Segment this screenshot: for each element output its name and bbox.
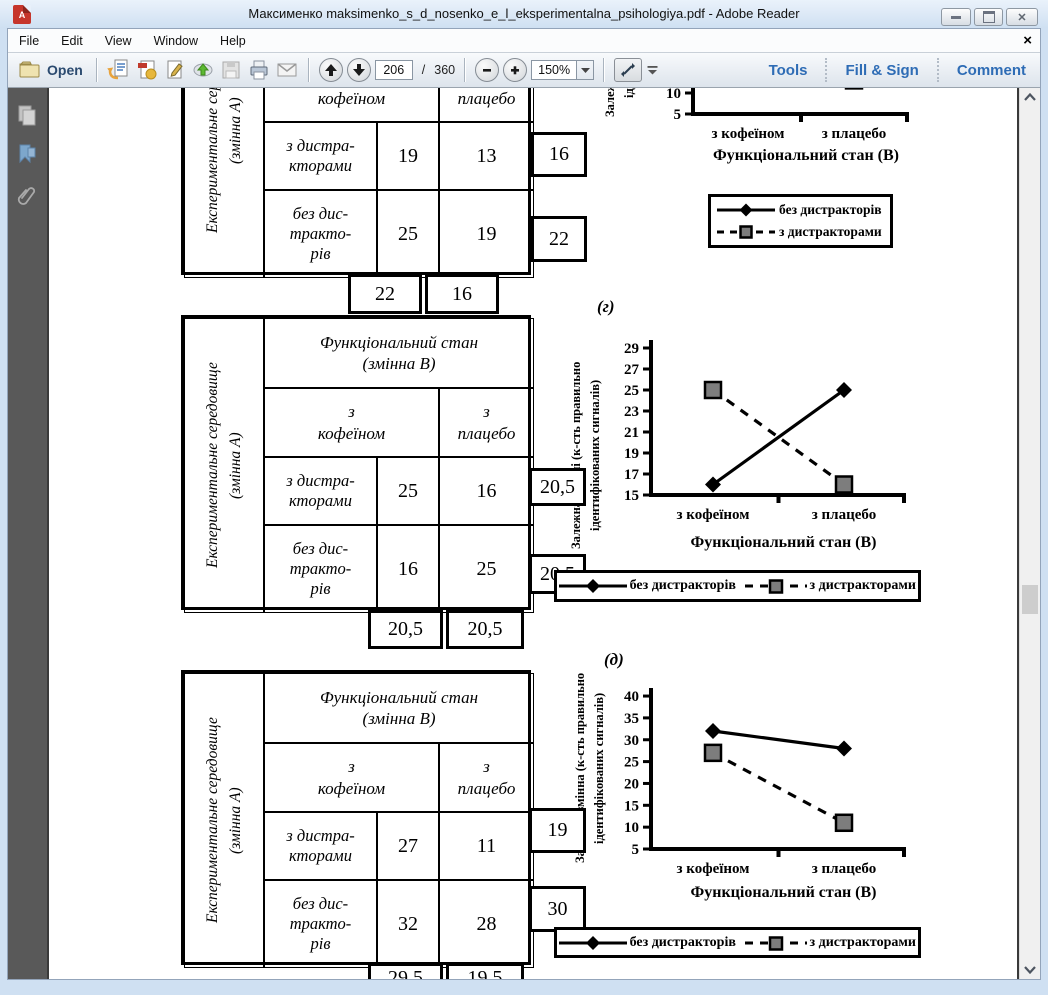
zoom-out-button[interactable] bbox=[475, 58, 499, 82]
restore-button[interactable] bbox=[974, 8, 1003, 26]
svg-text:23: 23 bbox=[624, 404, 639, 420]
legend-dashed-sample bbox=[745, 935, 807, 951]
col-margin-box: 22 bbox=[348, 274, 422, 314]
document-close-icon[interactable]: × bbox=[1023, 33, 1032, 48]
row-header-no-distractors: без дис- тракто- рів bbox=[264, 525, 377, 613]
chart-top: 51015202530з кофеїномз плацебоФункціонал… bbox=[641, 88, 921, 195]
table-value: 25 bbox=[377, 457, 439, 525]
chart-d-legend: без дистракторів з дистракторами bbox=[554, 927, 921, 958]
svg-text:10: 10 bbox=[666, 88, 681, 102]
table-g: Експериментальне середовище (змінна А) Ф… bbox=[181, 315, 531, 610]
toolbar-separator bbox=[464, 58, 466, 82]
menu-file[interactable]: File bbox=[8, 29, 50, 52]
col-margin-box: 16 bbox=[425, 274, 499, 314]
table-value: 28 bbox=[439, 880, 534, 968]
col-header-coffee: з кофеїном bbox=[264, 88, 439, 122]
page-number-input[interactable] bbox=[375, 60, 413, 80]
minimize-button[interactable] bbox=[941, 8, 971, 26]
previous-view-icon[interactable] bbox=[107, 58, 131, 82]
chevron-down-icon bbox=[581, 67, 590, 73]
svg-text:Функціональний стан (В): Функціональний стан (В) bbox=[713, 147, 899, 164]
svg-text:15: 15 bbox=[624, 798, 639, 814]
menu-window[interactable]: Window bbox=[143, 29, 209, 52]
svg-text:з плацебо: з плацебо bbox=[812, 507, 876, 523]
tab-tools[interactable]: Tools bbox=[761, 62, 816, 79]
close-icon: ✕ bbox=[1017, 11, 1026, 24]
svg-text:19: 19 bbox=[624, 446, 639, 462]
row-margin-box: 19 bbox=[529, 808, 586, 853]
svg-text:25: 25 bbox=[624, 755, 639, 771]
col-header-coffee: з кофеїном bbox=[264, 388, 439, 457]
col-header-placebo: з плацебо bbox=[439, 743, 534, 812]
fit-width-icon bbox=[620, 62, 636, 78]
minimize-icon bbox=[951, 16, 961, 19]
document-view: Експериментальне середовище (змінна А) Ф… bbox=[49, 88, 1017, 979]
toolbar-separator bbox=[96, 58, 98, 82]
table-side-label: Експериментальне середовище (змінна А) bbox=[184, 673, 264, 968]
svg-text:29: 29 bbox=[624, 341, 639, 357]
table-d: Експериментальне середовище (змінна А) Ф… bbox=[181, 670, 531, 965]
toolbar-overflow-icon[interactable] bbox=[646, 63, 659, 77]
right-panel-tabs: Tools Fill & Sign Comment bbox=[761, 58, 1034, 82]
svg-text:15: 15 bbox=[624, 488, 639, 504]
table-value: 25 bbox=[439, 525, 534, 613]
close-button[interactable]: ✕ bbox=[1006, 8, 1038, 26]
svg-text:30: 30 bbox=[624, 733, 639, 749]
table-v: Експериментальне середовище (змінна А) Ф… bbox=[181, 88, 531, 275]
table-header: Функціональний стан (змінна В) bbox=[264, 318, 534, 388]
legend-solid-sample bbox=[559, 578, 627, 594]
figure-label-d: (д) bbox=[604, 650, 624, 670]
table-value: 25 bbox=[377, 190, 439, 278]
tab-separator bbox=[825, 58, 827, 82]
table-value: 16 bbox=[439, 457, 534, 525]
zoom-dropdown-button[interactable] bbox=[577, 60, 594, 80]
table-value: 19 bbox=[439, 190, 534, 278]
open-label: Open bbox=[47, 62, 83, 78]
svg-text:Функціональний стан (В): Функціональний стан (В) bbox=[691, 884, 877, 901]
table-value: 19 bbox=[377, 122, 439, 190]
chart-d: 510152025303540з кофеїномз плацебоФункці… bbox=[596, 677, 926, 937]
row-header-distractors: з дистра- кторами bbox=[264, 122, 377, 190]
col-margin-box: 29,5 bbox=[368, 963, 443, 979]
col-margin-box: 19,5 bbox=[446, 963, 524, 979]
col-header-placebo: з плацебо bbox=[439, 88, 534, 122]
restore-icon bbox=[983, 11, 995, 23]
svg-text:з плацебо: з плацебо bbox=[822, 126, 886, 142]
col-margin-box: 20,5 bbox=[446, 610, 524, 649]
zoom-in-button[interactable] bbox=[503, 58, 527, 82]
chart-g-y-axis-label: Залежна змінні (к-сть правильно ідентифі… bbox=[567, 324, 609, 586]
row-margin-box: 30 bbox=[529, 886, 586, 932]
svg-text:з кофеїном: з кофеїном bbox=[711, 126, 784, 142]
svg-text:5: 5 bbox=[632, 842, 640, 858]
svg-text:40: 40 bbox=[624, 689, 639, 705]
svg-text:10: 10 bbox=[624, 820, 639, 836]
zoom-level-value[interactable]: 150% bbox=[531, 60, 577, 80]
plus-icon bbox=[509, 64, 521, 76]
svg-text:17: 17 bbox=[624, 467, 640, 483]
row-header-distractors: з дистра- кторами bbox=[264, 457, 377, 525]
svg-text:5: 5 bbox=[674, 107, 682, 123]
previous-page-button[interactable] bbox=[319, 58, 343, 82]
bookmarks-icon[interactable] bbox=[16, 144, 38, 166]
row-margin-box: 22 bbox=[531, 216, 587, 262]
legend-solid-sample bbox=[717, 202, 775, 218]
legend-label-dashed: з дистракторами bbox=[810, 935, 916, 951]
toolbar: Open bbox=[8, 53, 1040, 88]
svg-text:з кофеїном: з кофеїном bbox=[676, 861, 749, 877]
tab-comment[interactable]: Comment bbox=[949, 62, 1034, 79]
svg-text:35: 35 bbox=[624, 711, 639, 727]
open-button[interactable]: Open bbox=[14, 57, 87, 83]
app-window: File Edit View Window Help × Open bbox=[7, 28, 1041, 980]
col-header-placebo: з плацебо bbox=[439, 388, 534, 457]
legend-solid-sample bbox=[559, 935, 627, 951]
svg-text:з плацебо: з плацебо bbox=[812, 861, 876, 877]
navigation-pane bbox=[8, 88, 47, 979]
svg-text:Функціональний стан (В): Функціональний стан (В) bbox=[691, 534, 877, 551]
table-side-label: Експериментальне середовище (змінна А) bbox=[184, 318, 264, 613]
legend-label-solid: без дистракторів bbox=[779, 202, 882, 218]
table-value: 32 bbox=[377, 880, 439, 968]
upload-cloud-icon[interactable] bbox=[191, 58, 215, 82]
legend-dashed-sample bbox=[717, 224, 775, 240]
window-title: Максименко maksimenko_s_d_nosenko_e_l_ek… bbox=[0, 6, 1048, 21]
page-count-separator: / bbox=[422, 63, 425, 77]
col-margin-box: 20,5 bbox=[368, 610, 443, 649]
table-value: 11 bbox=[439, 812, 534, 880]
legend-label-solid: без дистракторів bbox=[630, 935, 736, 951]
col-header-coffee: з кофеїном bbox=[264, 743, 439, 812]
sign-document-icon[interactable] bbox=[163, 58, 187, 82]
row-header-no-distractors: без дис- тракто- рів bbox=[264, 190, 377, 278]
menu-view[interactable]: View bbox=[94, 29, 143, 52]
svg-text:25: 25 bbox=[624, 383, 639, 399]
save-icon[interactable] bbox=[219, 58, 243, 82]
table-side-label: Експериментальне середовище (змінна А) bbox=[184, 88, 264, 278]
page-up-icon bbox=[324, 63, 338, 77]
chart-top-legend: без дистракторів з дистракторами bbox=[708, 194, 893, 248]
scroll-down-icon[interactable] bbox=[1024, 966, 1036, 974]
scrollbar-thumb[interactable] bbox=[1022, 585, 1038, 614]
table-value: 13 bbox=[439, 122, 534, 190]
print-icon[interactable] bbox=[247, 58, 271, 82]
svg-text:з кофеїном: з кофеїном bbox=[676, 507, 749, 523]
tab-fill-sign[interactable]: Fill & Sign bbox=[837, 62, 926, 79]
chart-g: 1517192123252729з кофеїномз плацебоФункц… bbox=[596, 327, 926, 587]
table-header: Функціональний стан (змінна В) bbox=[264, 673, 534, 743]
menu-help[interactable]: Help bbox=[209, 29, 257, 52]
minus-icon bbox=[481, 64, 493, 76]
legend-label-dashed: з дистракторами bbox=[810, 578, 916, 594]
toolbar-separator bbox=[603, 58, 605, 82]
chart-g-legend: без дистракторів з дистракторами bbox=[554, 570, 921, 602]
legend-dashed-sample bbox=[745, 578, 807, 594]
title-bar: A Максименко maksimenko_s_d_nosenko_e_l_… bbox=[0, 0, 1048, 28]
menu-bar: File Edit View Window Help × bbox=[8, 29, 1040, 53]
next-page-button[interactable] bbox=[347, 58, 371, 82]
window-bottom-frame bbox=[0, 980, 1048, 995]
row-header-distractors: з дистра- кторами bbox=[264, 812, 377, 880]
page-thumbnails-icon[interactable] bbox=[16, 105, 38, 127]
figure-label-g: (г) bbox=[597, 297, 615, 317]
row-margin-box: 20,5 bbox=[529, 468, 586, 506]
attachments-icon[interactable] bbox=[16, 185, 38, 207]
svg-text:27: 27 bbox=[624, 362, 640, 378]
svg-text:21: 21 bbox=[624, 425, 639, 441]
legend-label-solid: без дистракторів bbox=[630, 578, 736, 594]
chart-top-y-axis-label: Залежна змінна (к-сть правильно ідентифі… bbox=[601, 88, 643, 142]
svg-text:20: 20 bbox=[624, 776, 639, 792]
open-folder-icon bbox=[18, 59, 42, 81]
vertical-scrollbar[interactable] bbox=[1019, 88, 1040, 979]
email-icon[interactable] bbox=[275, 58, 299, 82]
menu-edit[interactable]: Edit bbox=[50, 29, 94, 52]
tab-separator bbox=[937, 58, 939, 82]
toolbar-separator bbox=[308, 58, 310, 82]
table-value: 16 bbox=[377, 525, 439, 613]
legend-label-dashed: з дистракторами bbox=[779, 224, 882, 240]
table-value: 27 bbox=[377, 812, 439, 880]
pdf-page: Експериментальне середовище (змінна А) Ф… bbox=[49, 88, 1017, 979]
page-down-icon bbox=[352, 63, 366, 77]
create-pdf-icon[interactable] bbox=[135, 58, 159, 82]
row-header-no-distractors: без дис- тракто- рів bbox=[264, 880, 377, 968]
row-margin-box: 16 bbox=[531, 132, 587, 177]
page-count: 360 bbox=[434, 63, 455, 77]
fit-width-button[interactable] bbox=[614, 58, 642, 82]
scroll-up-icon[interactable] bbox=[1024, 93, 1036, 101]
